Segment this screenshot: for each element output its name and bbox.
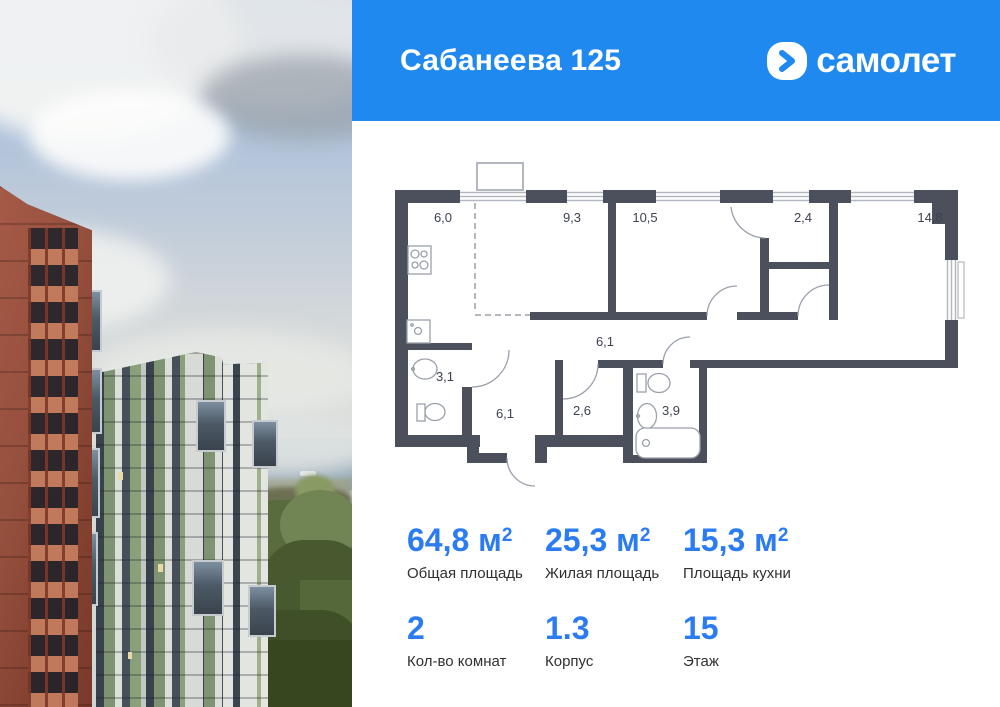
room-label-bedroom: 10,5 <box>632 210 657 225</box>
brand-name: самолет <box>816 41 956 81</box>
room-label-hallway: 6,1 <box>496 406 514 421</box>
stove-icon <box>408 246 431 274</box>
apartment-card[interactable]: Сабанеева 125 самолет <box>0 0 1000 707</box>
lit-window <box>128 652 132 659</box>
washbasin-icon <box>638 404 657 429</box>
page-title: Сабанеева 125 <box>400 0 621 121</box>
green-tower <box>96 352 268 707</box>
room-label-living-room: 9,3 <box>563 210 581 225</box>
kitchen-sink-icon <box>407 320 430 343</box>
stat-building: 1.3 Корпус <box>545 612 680 670</box>
stat-kitchen-area: 15,3 м2 Площадь кухни <box>683 524 818 582</box>
cloud <box>30 90 230 180</box>
washbasin-icon <box>413 359 437 379</box>
glass-balcony <box>196 400 226 452</box>
room-label-corridor: 6,1 <box>596 334 614 349</box>
glass-balcony <box>192 560 224 616</box>
red-tower <box>0 186 92 707</box>
brand-logo[interactable]: самолет <box>767 0 956 121</box>
room-label-bathroom-guest: 3,1 <box>436 369 454 384</box>
lit-window <box>118 472 123 480</box>
stat-floor: 15 Этаж <box>683 612 818 670</box>
balcony-outline <box>477 163 523 190</box>
header: Сабанеева 125 самолет <box>352 0 1000 121</box>
bathtub-icon <box>636 428 700 458</box>
floor-plan: 6,0 9,3 10,5 2,4 14,8 6,1 3,1 6,1 2,6 3,… <box>395 162 965 507</box>
floor-lines <box>96 352 268 707</box>
room-label-bathroom: 3,9 <box>662 403 680 418</box>
plan-dashed-dividers <box>475 203 530 315</box>
building-photo <box>0 0 352 707</box>
stat-rooms-count: 2 Кол-во комнат <box>407 612 542 670</box>
room-label-bedroom-2: 14,8 <box>917 210 942 225</box>
glass-balcony <box>248 585 276 637</box>
stat-total-area: 64,8 м2 Общая площадь <box>407 524 542 582</box>
room-label-wardrobe: 2,4 <box>794 210 812 225</box>
plan-fixtures <box>407 246 700 458</box>
toilet-icon <box>417 404 425 421</box>
samolet-logo-icon <box>767 41 807 81</box>
toilet-icon <box>637 374 646 392</box>
room-label-kitchen: 6,0 <box>434 210 452 225</box>
plan-walls <box>395 190 958 463</box>
glass-balcony <box>252 420 278 468</box>
window-mullions <box>28 228 79 707</box>
lit-window <box>158 564 163 572</box>
room-label-storage: 2,6 <box>573 403 591 418</box>
info-panel: Сабанеева 125 самолет <box>352 0 1000 707</box>
plan-windows <box>460 193 964 321</box>
stat-living-area: 25,3 м2 Жилая площадь <box>545 524 680 582</box>
